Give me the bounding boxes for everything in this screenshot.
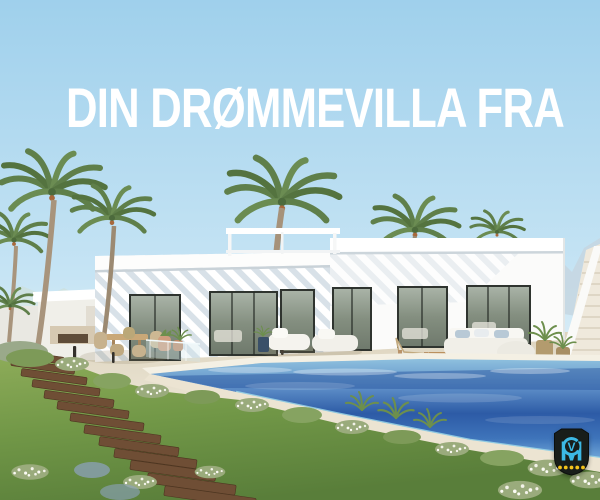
headline-text: DIN DRØMMEVILLA FRA [66,80,534,136]
villa-scene-illustration [0,0,600,500]
logo-monogram-v: V [567,440,575,454]
villa-ad-banner[interactable]: DIN DRØMMEVILLA FRA M V [0,0,600,500]
company-logo[interactable]: M V [551,427,592,477]
